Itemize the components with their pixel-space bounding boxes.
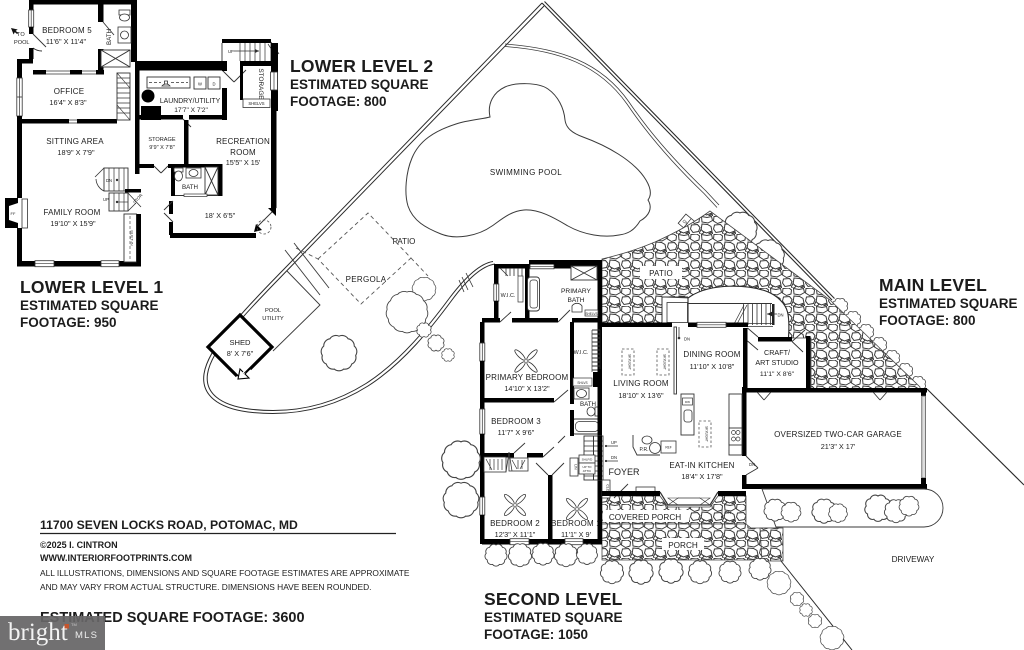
svg-text:DN: DN bbox=[106, 178, 112, 183]
svg-text:SITTING AREA: SITTING AREA bbox=[46, 137, 104, 146]
svg-text:BATH: BATH bbox=[580, 401, 596, 408]
svg-text:STORAGE: STORAGE bbox=[257, 68, 264, 99]
svg-text:DN: DN bbox=[611, 455, 617, 460]
svg-text:12'3" X 11'1": 12'3" X 11'1" bbox=[495, 530, 536, 539]
svg-text:BEDROOM 5: BEDROOM 5 bbox=[42, 26, 92, 35]
svg-text:MLS: MLS bbox=[75, 630, 98, 641]
svg-text:SWIMMING POOL: SWIMMING POOL bbox=[490, 168, 562, 177]
svg-text:©2025 I. CINTRON: ©2025 I. CINTRON bbox=[40, 540, 118, 550]
svg-text:MAIN LEVEL: MAIN LEVEL bbox=[879, 275, 987, 295]
svg-text:TO: TO bbox=[17, 32, 25, 38]
svg-text:SKYLIGHT: SKYLIGHT bbox=[704, 426, 708, 442]
svg-text:SKYLIGHT: SKYLIGHT bbox=[662, 354, 666, 370]
svg-text:LIVING ROOM: LIVING ROOM bbox=[613, 379, 669, 388]
svg-text:bright: bright bbox=[8, 619, 68, 646]
svg-text:ATTIC: ATTIC bbox=[583, 469, 592, 473]
svg-text:14'10" X 13'2": 14'10" X 13'2" bbox=[504, 384, 550, 393]
svg-text:UTILITY: UTILITY bbox=[262, 316, 284, 322]
svg-text:SHELVS: SHELVS bbox=[585, 312, 597, 316]
svg-text:PRIMARY BEDROOM: PRIMARY BEDROOM bbox=[486, 373, 569, 382]
svg-text:ESTIMATED SQUARE: ESTIMATED SQUARE bbox=[484, 610, 623, 625]
svg-text:PERGOLA: PERGOLA bbox=[346, 275, 387, 284]
svg-text:OVERSIZED TWO-CAR GARAGE: OVERSIZED TWO-CAR GARAGE bbox=[774, 430, 902, 439]
svg-text:TM: TM bbox=[71, 622, 77, 627]
svg-text:POOL: POOL bbox=[265, 308, 282, 314]
svg-text:DN: DN bbox=[778, 313, 784, 318]
svg-text:SHLVS: SHLVS bbox=[577, 381, 587, 385]
svg-text:DN: DN bbox=[725, 510, 731, 515]
svg-text:OFFICE: OFFICE bbox=[54, 87, 85, 96]
svg-text:19'10" X 15'9": 19'10" X 15'9" bbox=[50, 219, 96, 228]
svg-text:COVERED PORCH: COVERED PORCH bbox=[609, 513, 681, 522]
svg-text:16'4" X 8'3": 16'4" X 8'3" bbox=[49, 98, 87, 107]
svg-text:SECOND LEVEL: SECOND LEVEL bbox=[484, 589, 623, 609]
svg-text:17'7" X 7'2": 17'7" X 7'2" bbox=[174, 107, 208, 114]
svg-text:PRIMARY: PRIMARY bbox=[561, 288, 592, 295]
svg-text:W: W bbox=[198, 82, 202, 87]
svg-text:BEDROOM 1: BEDROOM 1 bbox=[551, 519, 601, 528]
svg-text:W.I.C.: W.I.C. bbox=[501, 293, 516, 299]
svg-text:ART STUDIO: ART STUDIO bbox=[755, 358, 799, 367]
svg-text:UP: UP bbox=[228, 49, 234, 54]
svg-text:FF: FF bbox=[11, 211, 16, 216]
svg-text:BATH: BATH bbox=[182, 184, 198, 191]
svg-text:11'6" X 11'4": 11'6" X 11'4" bbox=[46, 37, 87, 46]
svg-text:18'4" X 17'8": 18'4" X 17'8" bbox=[681, 472, 723, 481]
svg-text:LOWER LEVEL 2: LOWER LEVEL 2 bbox=[290, 56, 433, 76]
svg-text:8' X 7'6": 8' X 7'6" bbox=[227, 349, 254, 358]
svg-text:AND MAY VARY FROM ACTUAL STRUC: AND MAY VARY FROM ACTUAL STRUCTURE. DIME… bbox=[40, 582, 371, 592]
svg-text:POOL: POOL bbox=[14, 40, 30, 46]
svg-text:FOOTAGE: 800: FOOTAGE: 800 bbox=[879, 313, 976, 328]
svg-text:PORCH: PORCH bbox=[668, 541, 698, 550]
svg-text:ESTIMATED SQUARE: ESTIMATED SQUARE bbox=[20, 298, 159, 313]
svg-text:ESTIMATED SQUARE: ESTIMATED SQUARE bbox=[290, 77, 429, 92]
svg-text:11'1" X 8'6": 11'1" X 8'6" bbox=[760, 371, 795, 378]
svg-text:BATH: BATH bbox=[567, 297, 584, 304]
svg-text:EAT-IN KITCHEN: EAT-IN KITCHEN bbox=[669, 461, 734, 470]
svg-text:UP: UP bbox=[611, 440, 617, 445]
svg-text:15'5" X 15': 15'5" X 15' bbox=[226, 158, 261, 167]
svg-text:BUILT-IN: BUILT-IN bbox=[130, 230, 134, 246]
svg-text:ALL ILLUSTRATIONS, DIMENSIONS: ALL ILLUSTRATIONS, DIMENSIONS AND SQUARE… bbox=[40, 568, 410, 578]
svg-text:DINING ROOM: DINING ROOM bbox=[683, 350, 740, 359]
svg-text:WWW.INTERIORFOOTPRINTS.COM: WWW.INTERIORFOOTPRINTS.COM bbox=[40, 553, 192, 563]
svg-text:D: D bbox=[212, 82, 215, 87]
svg-text:FOYER: FOYER bbox=[608, 467, 640, 477]
svg-text:FOOTAGE: 800: FOOTAGE: 800 bbox=[290, 94, 387, 109]
svg-text:UP: UP bbox=[103, 197, 109, 202]
svg-text:FAMILY ROOM: FAMILY ROOM bbox=[43, 208, 100, 217]
svg-text:PATIO: PATIO bbox=[649, 269, 673, 278]
svg-text:PATIO: PATIO bbox=[393, 237, 416, 246]
svg-text:21'3" X 17': 21'3" X 17' bbox=[821, 442, 856, 451]
svg-text:9'9" X 7'8": 9'9" X 7'8" bbox=[149, 145, 174, 151]
svg-text:ESTIMATED SQUARE: ESTIMATED SQUARE bbox=[879, 296, 1018, 311]
svg-text:LOWER LEVEL 1: LOWER LEVEL 1 bbox=[20, 277, 163, 297]
svg-text:SHLF/D: SHLF/D bbox=[582, 458, 594, 462]
svg-text:11'1" X 9': 11'1" X 9' bbox=[561, 530, 592, 539]
svg-text:BATH: BATH bbox=[106, 29, 113, 45]
svg-text:ROOM: ROOM bbox=[230, 148, 256, 157]
svg-text:18' X 6'5": 18' X 6'5" bbox=[205, 211, 236, 220]
svg-text:11'7" X 9'6": 11'7" X 9'6" bbox=[498, 428, 535, 437]
svg-text:SKYLIGHT: SKYLIGHT bbox=[627, 354, 631, 370]
svg-text:18'10" X 13'6": 18'10" X 13'6" bbox=[618, 391, 664, 400]
svg-text:LIN: LIN bbox=[574, 464, 578, 470]
svg-text:CRAFT/: CRAFT/ bbox=[764, 348, 790, 357]
svg-text:DN: DN bbox=[684, 337, 690, 342]
svg-text:DW: DW bbox=[685, 400, 690, 404]
svg-text:REF: REF bbox=[665, 446, 671, 450]
svg-text:11'10" X 10'8": 11'10" X 10'8" bbox=[690, 362, 735, 371]
svg-text:11700 SEVEN LOCKS ROAD, POTOMA: 11700 SEVEN LOCKS ROAD, POTOMAC, MD bbox=[40, 518, 298, 532]
svg-text:SHED: SHED bbox=[229, 338, 251, 347]
svg-text:P.R.: P.R. bbox=[639, 447, 648, 453]
svg-text:W.I.C.: W.I.C. bbox=[574, 350, 589, 356]
svg-text:BEDROOM 3: BEDROOM 3 bbox=[491, 417, 541, 426]
svg-text:STORAGE: STORAGE bbox=[148, 137, 176, 143]
svg-text:RECREATION: RECREATION bbox=[216, 137, 270, 146]
svg-text:FOOTAGE: 1050: FOOTAGE: 1050 bbox=[484, 627, 588, 642]
svg-text:DRIVEWAY: DRIVEWAY bbox=[892, 555, 935, 564]
svg-text:BEDROOM 2: BEDROOM 2 bbox=[490, 519, 540, 528]
svg-text:FOOTAGE: 950: FOOTAGE: 950 bbox=[20, 315, 117, 330]
svg-text:18'9" X 7'9": 18'9" X 7'9" bbox=[57, 148, 95, 157]
svg-text:SHELVS: SHELVS bbox=[248, 101, 264, 106]
svg-text:LAUNDRY/UTILITY: LAUNDRY/UTILITY bbox=[160, 98, 221, 105]
svg-text:DN: DN bbox=[749, 462, 755, 467]
